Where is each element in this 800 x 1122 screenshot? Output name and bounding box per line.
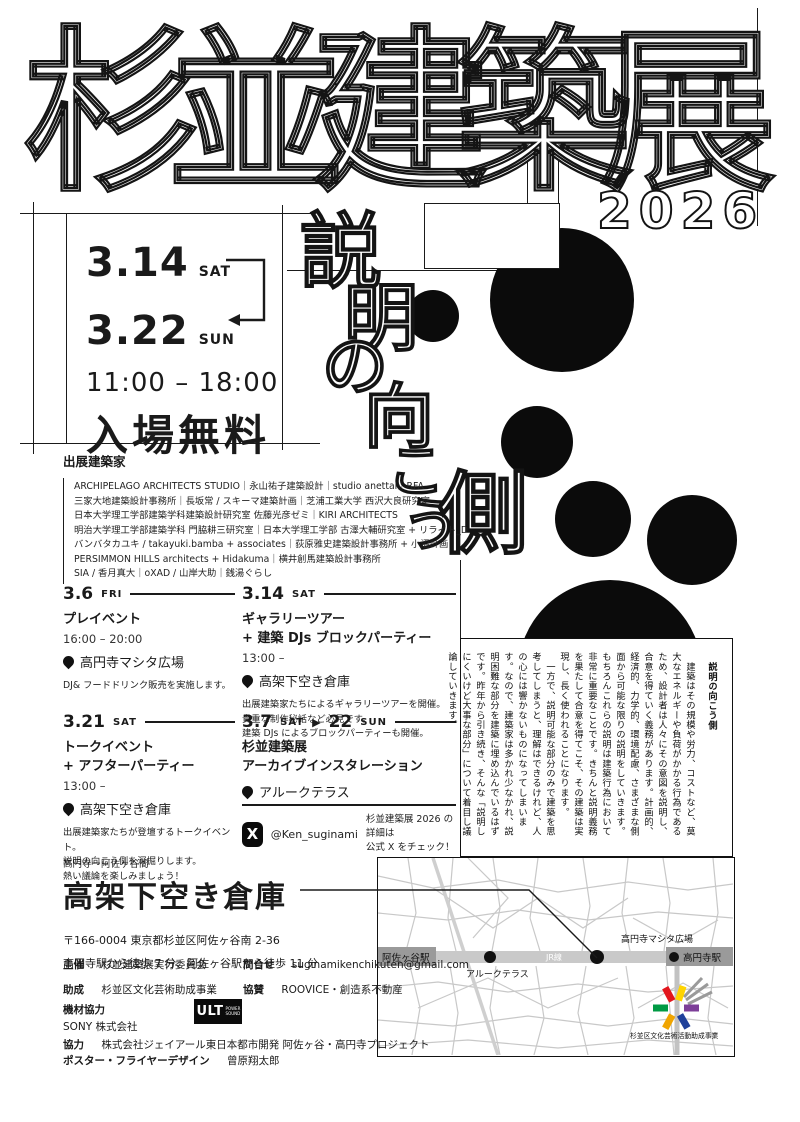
event-place: 高架下空き倉庫 <box>80 799 171 818</box>
credit-organizer: 主催 杉並建築展実行委員会 <box>63 957 206 972</box>
poster: 杉並建築展 2026 説 明 の 向 こ う 側 3.14 SAT 3.22 S… <box>0 0 800 1122</box>
credit-value: 杉並建築展実行委員会 <box>101 959 206 971</box>
title-line: トークイベント <box>63 738 235 757</box>
open-hours: 11:00 – 18:00 <box>86 368 278 398</box>
event-time: 16:00 – 20:00 <box>63 632 235 646</box>
circle-mid-2 <box>555 481 631 557</box>
credit-cooperation: 協力 株式会社ジェイアール東日本都市開発 阿佐ヶ谷・高円寺プロジェクト <box>63 1037 430 1052</box>
credit-equipment: SONY 株式会社 <box>63 1019 138 1034</box>
x-promo[interactable]: X @Ken_suginami 杉並建築展 2026 の詳細は 公式 X をチェ… <box>242 813 462 855</box>
event-day: SAT <box>113 717 137 728</box>
event-day: SAT <box>292 589 316 600</box>
map-pin-icon <box>240 673 256 689</box>
architects-list: ARCHIPELAGO ARCHITECTS STUDIO｜永山祐子建築設計｜s… <box>63 478 493 584</box>
poster-title: 杉並建築展 <box>24 22 794 207</box>
deco-line <box>66 213 67 443</box>
deco-line <box>33 202 34 454</box>
event-place-row: 高架下空き倉庫 <box>242 671 456 690</box>
event-title: プレイベント <box>63 610 235 629</box>
essay-paragraph-2: 一方で、説明可能な部分のみで建築を思考してしまうと、理解はできるけれど、人の心に… <box>444 652 556 843</box>
venue-address: 〒166-0004 東京都杉並区阿佐ヶ谷南 2-36 <box>63 932 318 948</box>
credit-label: 協力 <box>63 1039 84 1051</box>
architect-line: 明治大学理工学部建築学科 門脇耕三研究室｜日本大学理工学部 古澤大輔研究室 + … <box>74 524 493 539</box>
venue-section: 高円寺ー阿佐ヶ谷間 高架下空き倉庫 〒166-0004 東京都杉並区阿佐ヶ谷南 … <box>63 856 318 971</box>
event-desc: DJ& フードドリンク販売を実施します。 <box>63 679 235 694</box>
header-rule <box>324 593 456 595</box>
event-time: 13:00 – <box>242 651 456 665</box>
event-header: 3.21 SAT <box>63 712 235 732</box>
header-rule <box>130 593 235 595</box>
essay-text: 説明の向こう側 建築はその規模や労力、コストなど、莫大なエネルギーや負荷がかかる… <box>475 652 718 843</box>
plaza-label: 高円寺マシタ広場 <box>621 933 693 945</box>
event-title: トークイベント + アフターパーティー <box>63 738 235 776</box>
event-header: 3.7 SAT ▶ 22 SUN <box>242 712 456 732</box>
venue-pointer-line <box>296 882 608 966</box>
desc-line: DJ& フードドリンク販売を実施します。 <box>63 679 235 694</box>
event-place-row: 高架下空き倉庫 <box>63 799 235 818</box>
circle-mid-3 <box>647 495 737 585</box>
title-line: + アフターパーティー <box>63 757 235 776</box>
architect-line: 日本大学理工学部建築学科建築設計研究室 佐藤光彦ゼミ｜KIRI ARCHITEC… <box>74 509 493 524</box>
architects-heading: 出展建築家 <box>63 451 493 470</box>
ult-logo-text: ULT <box>196 1004 223 1019</box>
map-pin-icon <box>240 784 256 800</box>
credit-value: SONY 株式会社 <box>63 1021 138 1033</box>
title-line: 杉並建築展 <box>242 738 456 757</box>
event-date: 3.21 <box>63 712 105 732</box>
deco-line <box>282 205 283 450</box>
architect-line: SIA / 香月真大｜oXAD / 山岸大助｜銭湯ぐらし <box>74 567 493 582</box>
credit-value: 曾原翔太郎 <box>227 1055 280 1067</box>
ult-power-sound-logo: ULT POWER SOUND <box>194 999 242 1024</box>
x-logo-icon[interactable]: X <box>242 822 263 847</box>
title-line: + 建築 DJs ブロックパーティー <box>242 629 456 648</box>
credit-design: ポスター・フライヤーデザイン 曾原翔太郎 <box>63 1053 280 1068</box>
credit-label: ポスター・フライヤーデザイン <box>63 1055 210 1067</box>
architect-line: バンバタカユキ / takayuki.bamba + associates｜荻原… <box>74 538 493 553</box>
essay-paragraph-1: 建築はその規模や労力、コストなど、莫大なエネルギーや負荷がかかる行為であるため、… <box>556 652 696 843</box>
start-date: 3.14 <box>86 240 189 286</box>
event-day: FRI <box>101 589 122 600</box>
credit-value: 杉並区文化芸術助成事業 <box>101 984 217 996</box>
koenji-dot <box>669 952 679 962</box>
venue-area-note: 高円寺ー阿佐ヶ谷間 <box>63 856 318 870</box>
essay-title: 説明の向こう側 <box>704 652 718 843</box>
event-time: 13:00 – <box>63 779 235 793</box>
credit-label: 主催 <box>63 959 84 971</box>
title-line: ギャラリーツアー <box>242 610 456 629</box>
event-date-end: 22 <box>329 712 353 732</box>
essay-box: 説明の向こう側 建築はその規模や労力、コストなど、莫大なエネルギーや負荷がかかる… <box>460 638 733 857</box>
event-place-row: 高円寺マシタ広場 <box>63 652 235 671</box>
event-title: 杉並建築展 アーカイブインスタレーション <box>242 738 456 776</box>
end-day: SUN <box>199 332 235 348</box>
event-pre: 3.6 FRI プレイベント 16:00 – 20:00 高円寺マシタ広場 DJ… <box>63 584 235 694</box>
desc-line: 出展建築家たちが登壇するトークイベント。 <box>63 826 235 855</box>
credit-sponsor: 協賛 ROOVICE・創造系不動産 <box>243 982 403 997</box>
event-date: 3.7 <box>242 712 272 732</box>
koenji-station-label: 高円寺駅 <box>683 952 722 964</box>
event-place: アルークテラス <box>259 782 350 801</box>
range-arrow-icon: ▶ <box>312 716 320 729</box>
suginami-grant-logo <box>653 978 712 1030</box>
terrace-label: アルークテラス <box>466 969 529 980</box>
event-header: 3.6 FRI <box>63 584 235 604</box>
desc-line: 出展建築家たちによるギャラリーツアーを開催。 <box>242 698 456 713</box>
event-header: 3.14 SAT <box>242 584 456 604</box>
event-place: 高円寺マシタ広場 <box>80 652 184 671</box>
credit-contact: 問合せ suginamikenchikuten@gmail.com <box>243 957 469 972</box>
architects-section: 出展建築家 ARCHIPELAGO ARCHITECTS STUDIO｜永山祐子… <box>63 451 493 584</box>
contact-email[interactable]: suginamikenchikuten@gmail.com <box>292 959 469 971</box>
credit-label: 機材協力 <box>63 1004 105 1016</box>
architect-line: 三家大地建築設計事務所｜長坂常 / スキーマ建築計画｜芝浦工業大学 西沢大良研究… <box>74 495 493 510</box>
title-line: アーカイブインスタレーション <box>242 757 456 776</box>
map-pin-icon <box>61 801 77 817</box>
poster-year: 2026 <box>597 182 764 240</box>
map-pin-icon <box>61 654 77 670</box>
credit-equipment-label: 機材協力 <box>63 1002 119 1017</box>
credit-label: 協賛 <box>243 984 264 996</box>
credits-section: 主催 杉並建築展実行委員会 問合せ suginamikenchikuten@gm… <box>63 957 393 1077</box>
venue-name: 高架下空き倉庫 <box>63 872 318 916</box>
event-day: SAT <box>280 717 304 728</box>
event-date: 3.6 <box>63 584 93 604</box>
event-exhibition: 3.7 SAT ▶ 22 SUN 杉並建築展 アーカイブインスタレーション アル… <box>242 712 456 801</box>
event-place-row: アルークテラス <box>242 782 456 801</box>
event-day-end: SUN <box>360 717 387 728</box>
credit-label: 助成 <box>63 984 84 996</box>
credit-grant: 助成 杉並区文化芸術助成事業 <box>63 982 217 997</box>
event-date: 3.14 <box>242 584 284 604</box>
x-note-line: 公式 X をチェック！ <box>366 841 462 855</box>
end-date: 3.22 <box>86 308 189 354</box>
architect-line: ARCHIPELAGO ARCHITECTS STUDIO｜永山祐子建築設計｜s… <box>74 480 493 495</box>
grant-logo-caption: 杉並区文化芸術活動助成事業 <box>630 1031 719 1040</box>
x-separator <box>242 804 456 806</box>
x-handle[interactable]: @Ken_suginami <box>271 828 358 841</box>
ult-logo-subtext: POWER SOUND <box>226 1007 240 1016</box>
header-rule <box>145 721 235 723</box>
date-range-arrow <box>224 250 274 332</box>
credit-label: 問合せ <box>243 959 275 971</box>
credit-value: 株式会社ジェイアール東日本都市開発 阿佐ヶ谷・高円寺プロジェクト <box>101 1039 429 1051</box>
event-place: 高架下空き倉庫 <box>259 671 350 690</box>
credit-value: ROOVICE・創造系不動産 <box>281 984 402 996</box>
event-title: ギャラリーツアー + 建築 DJs ブロックパーティー <box>242 610 456 648</box>
architect-line: PERSIMMON HILLS architects + Hidakuma｜横井… <box>74 553 493 568</box>
